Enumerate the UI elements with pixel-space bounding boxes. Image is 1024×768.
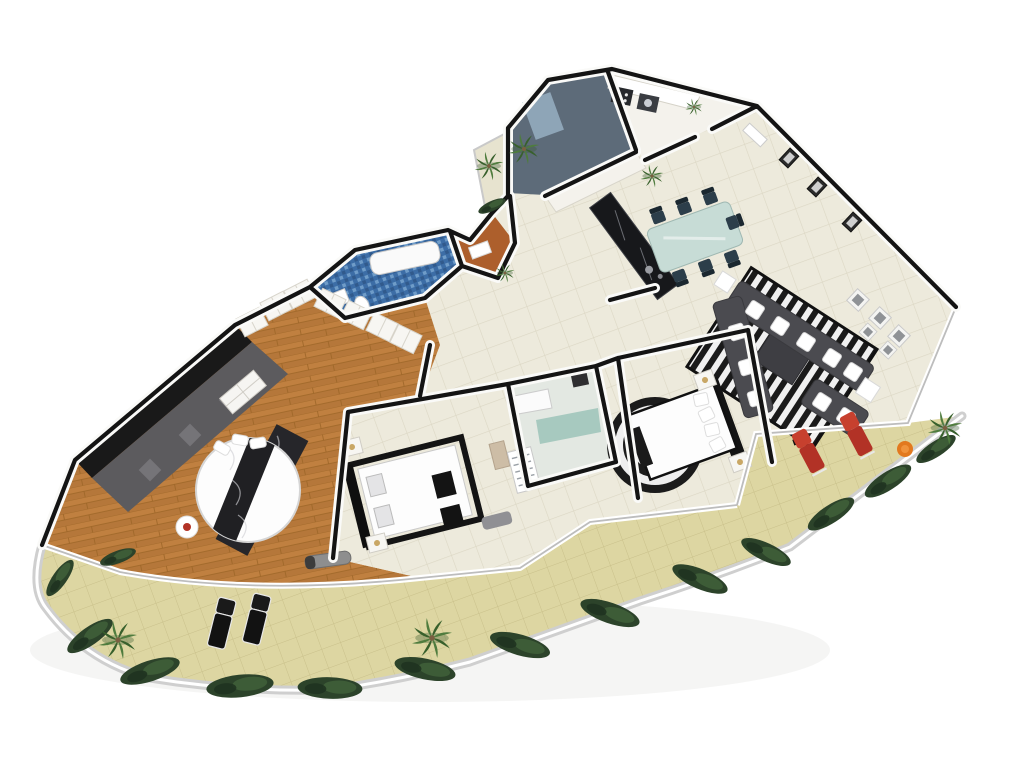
- screenshot-canvas: [0, 0, 1024, 768]
- orange-parasol-center: [901, 445, 909, 453]
- vanity-flowers: [183, 523, 191, 531]
- floorplan-render: [0, 0, 1024, 768]
